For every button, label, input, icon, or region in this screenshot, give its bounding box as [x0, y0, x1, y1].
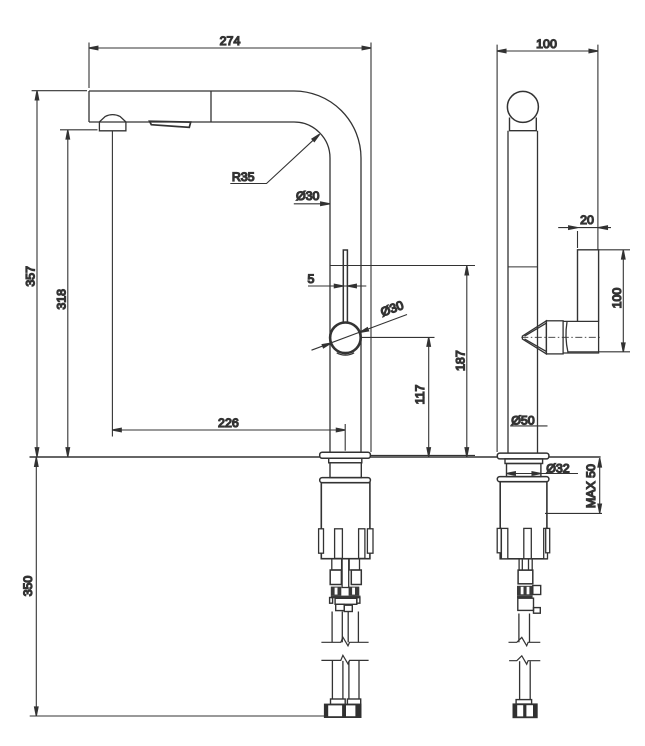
- svg-text:117: 117: [413, 385, 427, 405]
- svg-text:226: 226: [218, 416, 239, 430]
- svg-text:100: 100: [536, 37, 557, 51]
- svg-text:R35: R35: [232, 170, 255, 184]
- svg-text:100: 100: [610, 288, 624, 309]
- svg-text:Ø32: Ø32: [546, 461, 570, 475]
- svg-text:5: 5: [308, 272, 315, 286]
- svg-text:Ø30: Ø30: [296, 189, 320, 203]
- svg-text:318: 318: [54, 289, 68, 310]
- svg-text:187: 187: [454, 350, 468, 371]
- svg-text:274: 274: [220, 34, 241, 48]
- svg-text:Ø50: Ø50: [511, 413, 535, 427]
- svg-text:357: 357: [23, 266, 37, 287]
- svg-text:20: 20: [580, 213, 594, 227]
- svg-text:350: 350: [21, 576, 35, 597]
- svg-text:MAX 50: MAX 50: [584, 464, 598, 508]
